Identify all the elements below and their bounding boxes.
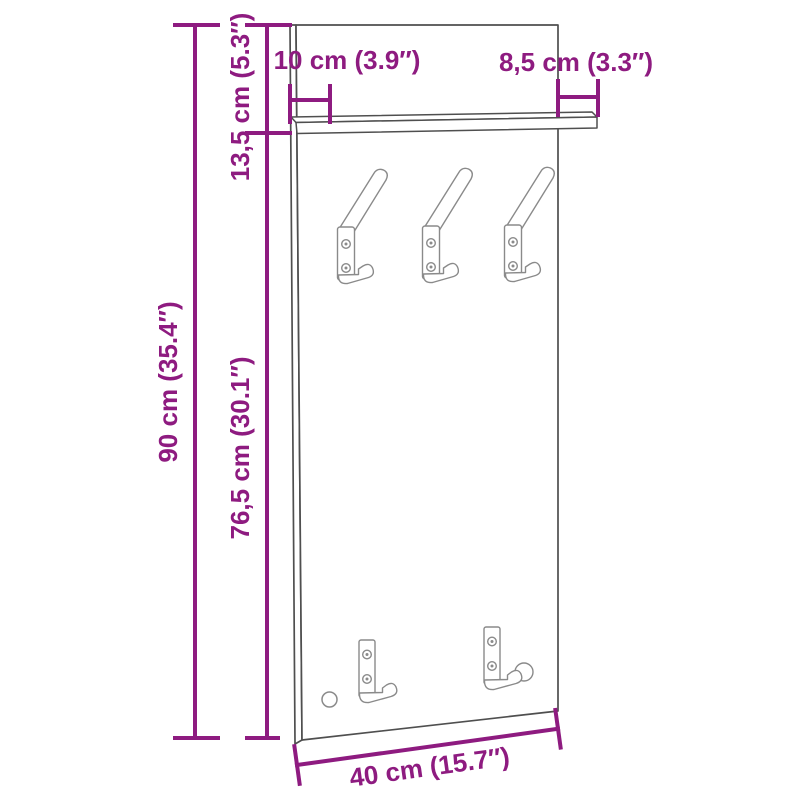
label-total-height: 90 cm (35.4″) [153, 301, 183, 462]
label-total-width: 40 cm (15.7″) [348, 741, 512, 793]
coat-rack-drawing: 10 cm (3.9″) 8,5 cm (3.3″) 13,5 cm (5.3″… [0, 0, 800, 800]
label-shelf-depth-left: 10 cm (3.9″) [274, 45, 421, 75]
label-shelf-depth-right: 8,5 cm (3.3″) [499, 47, 653, 77]
dim-tick [555, 710, 560, 748]
panel-screw-hole [322, 692, 337, 707]
product-dimension-diagram: 10 cm (3.9″) 8,5 cm (3.3″) 13,5 cm (5.3″… [0, 0, 800, 800]
label-shelf-section-height: 13,5 cm (5.3″) [225, 13, 255, 182]
label-lower-section-height: 76,5 cm (30.1″) [225, 356, 255, 539]
dim-tick [294, 746, 299, 784]
